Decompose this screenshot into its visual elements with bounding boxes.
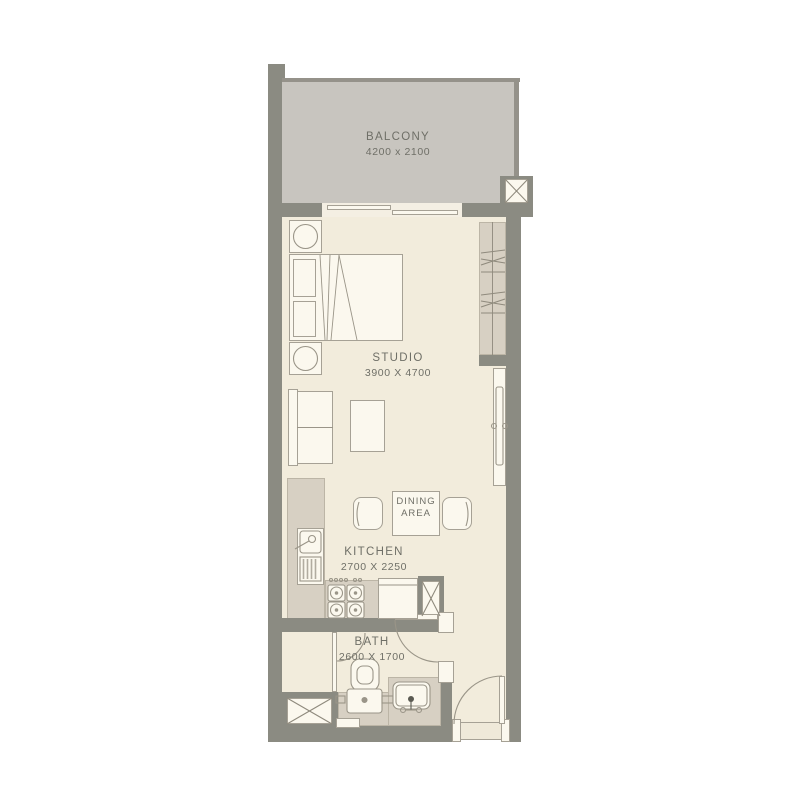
mirror-panel [493, 368, 506, 486]
window-band-right-block [462, 203, 533, 217]
balcony-rail-right [514, 80, 519, 178]
sofa-seat [297, 391, 333, 464]
bath-door-jamb-top [438, 612, 454, 633]
entry-threshold [456, 722, 504, 740]
nightstand-bottom [289, 342, 322, 375]
dining-chair-left [353, 497, 383, 530]
vanity-counter [388, 677, 441, 726]
pillow-top [293, 259, 316, 297]
balcony-rail-top [282, 78, 520, 82]
wall-left [268, 64, 282, 742]
wall-niche [336, 718, 360, 728]
wardrobe-end-cap [479, 355, 521, 366]
kitchen-sink-unit [297, 528, 324, 585]
kitchen-shaft-box [422, 581, 440, 616]
entry-jamb-left [452, 719, 461, 742]
nightstand-top [289, 220, 322, 253]
pillow-bottom [293, 301, 316, 337]
wardrobe [479, 222, 506, 355]
bath-door-jamb-bottom [438, 661, 454, 683]
dining-chair-right [442, 497, 472, 530]
sliding-window-panel-left [327, 205, 391, 210]
balcony-floor [282, 80, 514, 203]
shower-partition [332, 632, 337, 692]
floor-plan-canvas: BALCONY 4200 x 2100 STUDIO 3900 X 4700 D… [0, 0, 800, 800]
bath-wall-lower [441, 683, 452, 726]
bath-shaft-box [287, 698, 332, 724]
kitchen-appliance [378, 578, 418, 619]
sliding-window-panel-right [392, 210, 458, 215]
coffee-table [350, 400, 385, 452]
wall-bottom-left-segment [268, 726, 456, 742]
kitchen-bottom-wall [282, 618, 444, 632]
column-duct-box [505, 179, 528, 203]
wall-right [506, 212, 521, 726]
dining-table [392, 491, 440, 536]
window-band-left-stub [282, 203, 322, 217]
entry-door-leaf [499, 676, 505, 724]
